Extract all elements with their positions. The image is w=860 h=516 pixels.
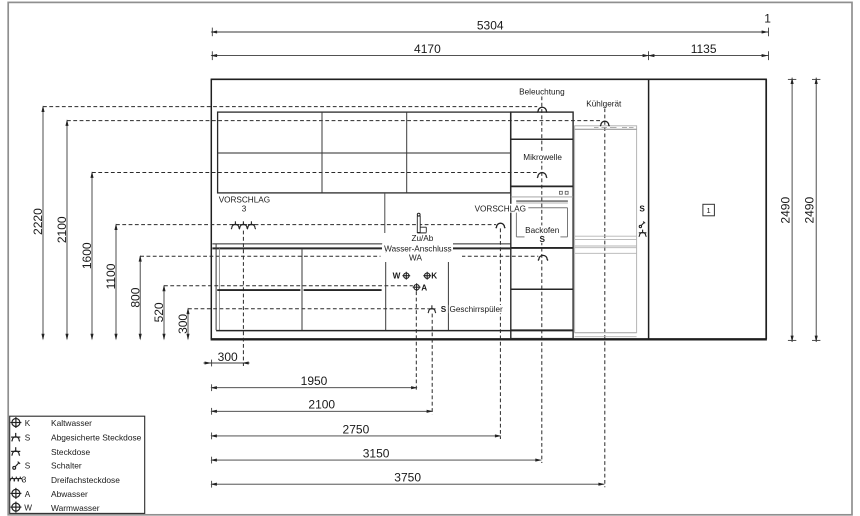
svg-text:1100: 1100 — [104, 263, 118, 289]
svg-text:W: W — [24, 504, 32, 513]
svg-text:Abwasser: Abwasser — [51, 489, 88, 499]
svg-text:A: A — [421, 283, 427, 292]
svg-text:K: K — [25, 419, 31, 428]
svg-text:Warmwasser: Warmwasser — [51, 503, 100, 513]
svg-text:2100: 2100 — [55, 216, 69, 243]
svg-text:VORSCHLAG: VORSCHLAG — [219, 195, 270, 204]
svg-text:S: S — [539, 235, 545, 244]
svg-text:300: 300 — [218, 350, 238, 364]
svg-text:Mikrowelle: Mikrowelle — [523, 153, 562, 162]
svg-text:2490: 2490 — [802, 197, 816, 224]
svg-text:Backofen: Backofen — [525, 226, 560, 235]
svg-text:3750: 3750 — [394, 471, 421, 485]
svg-text:Geschirrspüler: Geschirrspüler — [450, 305, 504, 314]
svg-text:2750: 2750 — [343, 422, 370, 436]
svg-text:Dreifachsteckdose: Dreifachsteckdose — [51, 475, 120, 485]
svg-text:4170: 4170 — [414, 42, 441, 56]
svg-text:Kaltwasser: Kaltwasser — [51, 418, 92, 428]
svg-text:2490: 2490 — [778, 197, 792, 224]
svg-text:520: 520 — [152, 302, 166, 322]
svg-text:1600: 1600 — [80, 242, 94, 269]
svg-text:S: S — [639, 205, 645, 214]
svg-text:Steckdose: Steckdose — [51, 447, 90, 457]
svg-text:300: 300 — [176, 314, 190, 334]
svg-text:S: S — [25, 461, 31, 470]
svg-text:WA: WA — [409, 254, 422, 263]
svg-text:K: K — [431, 272, 437, 281]
svg-text:Kühlgerät: Kühlgerät — [586, 100, 622, 109]
svg-text:S: S — [25, 434, 31, 443]
svg-text:S: S — [441, 305, 447, 314]
svg-text:Beleuchtung: Beleuchtung — [519, 88, 565, 97]
svg-text:Zu/Ab: Zu/Ab — [411, 234, 433, 243]
svg-text:3150: 3150 — [363, 447, 390, 461]
svg-text:1950: 1950 — [301, 374, 328, 388]
svg-text:1: 1 — [764, 11, 771, 25]
svg-text:2100: 2100 — [308, 398, 335, 412]
svg-text:A: A — [25, 490, 31, 499]
svg-text:Schalter: Schalter — [51, 461, 82, 471]
svg-text:1: 1 — [707, 206, 711, 215]
svg-text:2220: 2220 — [31, 208, 45, 235]
svg-text:VORSCHLAG: VORSCHLAG — [475, 204, 526, 213]
svg-text:800: 800 — [128, 287, 142, 307]
svg-text:1135: 1135 — [691, 42, 717, 56]
svg-text:3: 3 — [242, 205, 247, 214]
svg-text:W: W — [393, 272, 401, 281]
svg-text:3: 3 — [22, 476, 27, 485]
svg-text:Wasser-Anschluss: Wasser-Anschluss — [384, 244, 452, 253]
svg-text:Abgesicherte Steckdose: Abgesicherte Steckdose — [51, 433, 142, 443]
svg-text:5304: 5304 — [477, 18, 504, 32]
